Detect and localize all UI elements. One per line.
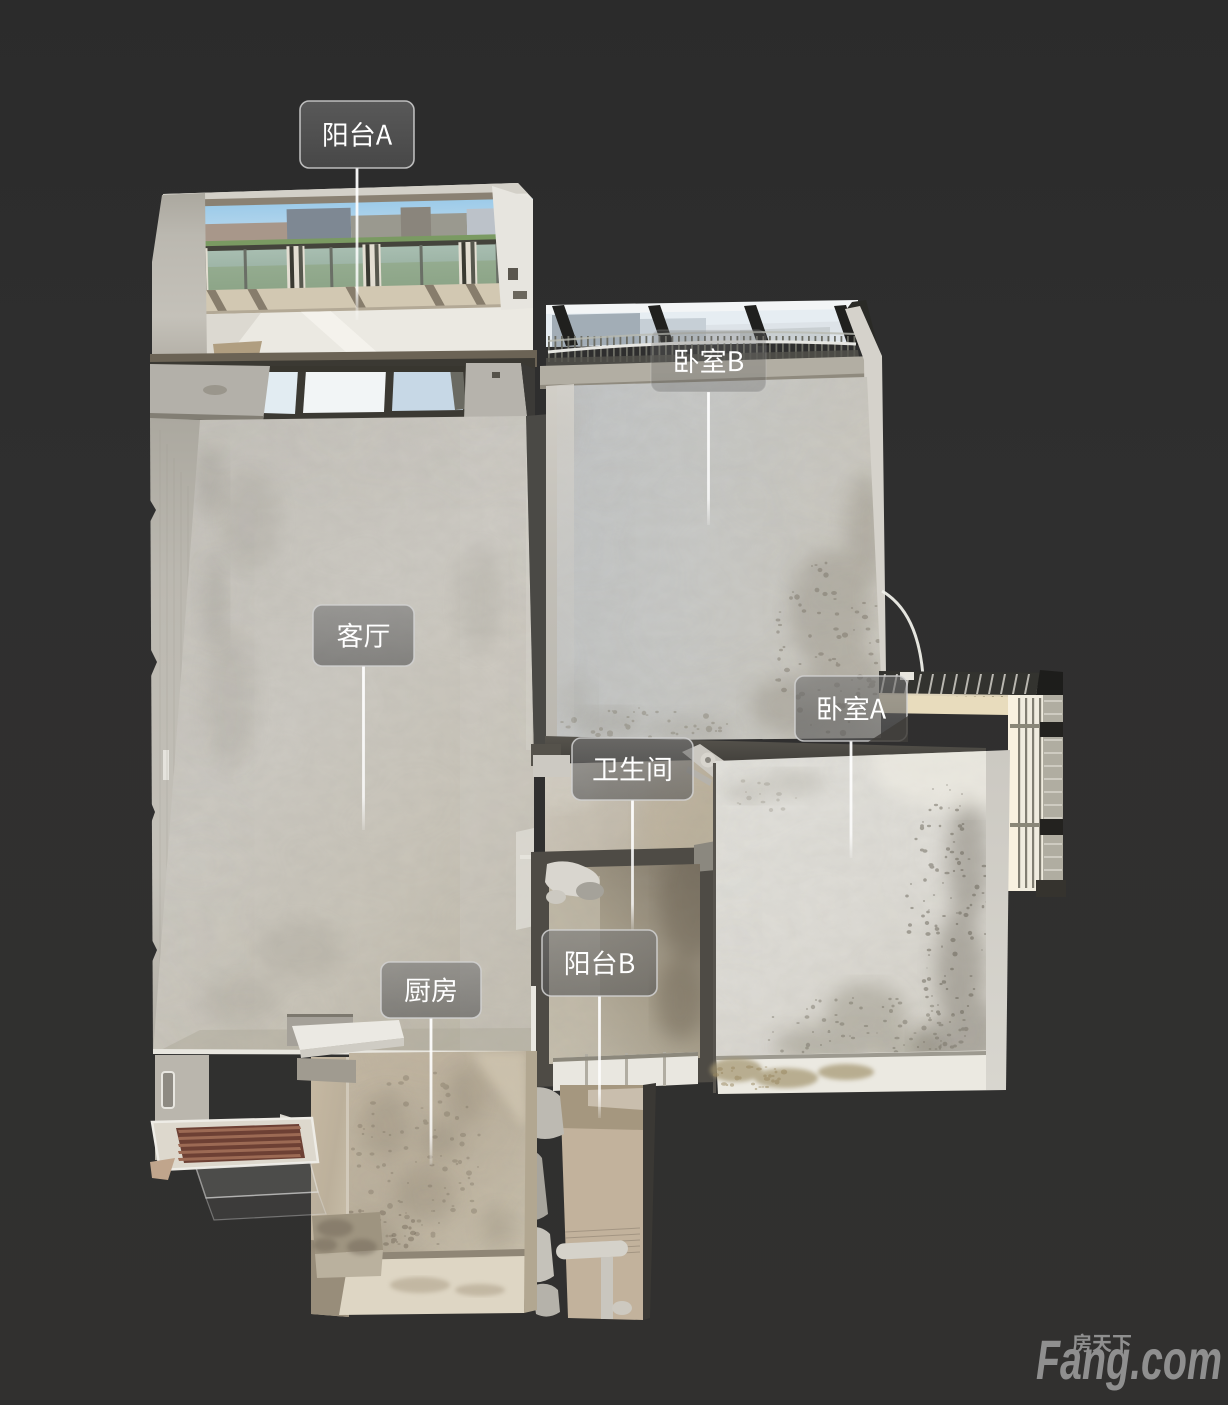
svg-text:Fang.com: Fang.com	[1036, 1328, 1222, 1391]
